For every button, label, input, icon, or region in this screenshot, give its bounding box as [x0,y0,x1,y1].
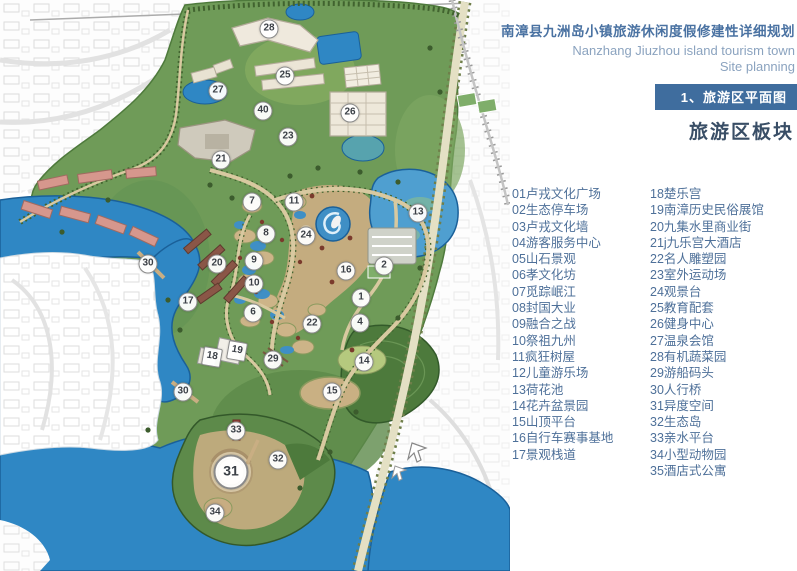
tower [233,420,240,440]
page-title-en: Nanzhang Jiuzhou island tourism town Sit… [487,43,795,75]
legend-item: 28有机蔬菜园 [650,349,764,365]
legend-item: 26健身中心 [650,316,764,332]
legend-item: 25教育配套 [650,300,764,316]
legend-item: 12儿童游乐场 [512,365,650,381]
legend-item: 20九集水里商业街 [650,219,764,235]
legend-column-1: 01卢戎文化广场02生态停车场03卢戎文化墙04游客服务中心05山石景观06孝文… [512,186,650,479]
legend-item: 16自行车赛事基地 [512,430,650,446]
legend-item: 19南漳历史民俗展馆 [650,202,764,218]
legend: 01卢戎文化广场02生态停车场03卢戎文化墙04游客服务中心05山石景观06孝文… [512,186,764,479]
legend-item: 11疯狂树屋 [512,349,650,365]
legend-item: 30人行桥 [650,382,764,398]
legend-item: 35酒店式公寓 [650,463,764,479]
legend-item: 22名人雕塑园 [650,251,764,267]
legend-item: 27温泉会馆 [650,333,764,349]
section-badge: 1、旅游区平面图 [655,84,797,110]
legend-item: 17景观栈道 [512,447,650,463]
legend-item: 09融合之战 [512,316,650,332]
legend-item: 29游船码头 [650,365,764,381]
legend-item: 31异度空间 [650,398,764,414]
legend-column-2: 18楚乐宫19南漳历史民俗展馆20九集水里商业街21j九乐宫大酒店22名人雕塑园… [650,186,764,479]
page-title-cn: 南漳县九洲岛小镇旅游休闲度假修建性详细规划 [487,20,795,40]
legend-item: 21j九乐宫大酒店 [650,235,764,251]
page-title-en-line1: Nanzhang Jiuzhou island tourism town [487,43,795,59]
page-title-en-line2: Site planning [487,59,795,75]
building-fitness-center [330,92,386,136]
spiral-water-feature [316,207,350,241]
legend-item: 10祭祖九州 [512,333,650,349]
legend-item: 18楚乐宫 [650,186,764,202]
sketch-peninsula [0,252,162,455]
legend-item: 04游客服务中心 [512,235,650,251]
section-subtitle: 旅游区板块 [487,117,794,144]
hilltop-platform [300,377,360,409]
legend-item: 13荷花池 [512,382,650,398]
building-museum [215,338,243,365]
map-canvas [0,0,510,571]
legend-item: 34小型动物园 [650,447,764,463]
legend-item: 07觅踪岷江 [512,284,650,300]
legend-item: 02生态停车场 [512,202,650,218]
legend-item: 23室外运动场 [650,267,764,283]
spring-pond [342,135,384,161]
legend-item: 06孝文化坊 [512,267,650,283]
legend-item: 08封国大业 [512,300,650,316]
legend-item: 05山石景观 [512,251,650,267]
legend-item: 01卢戎文化广场 [512,186,650,202]
site-plan-map: 2825274026232171113824920302161011764221… [0,0,510,571]
legend-item: 15山顶平台 [512,414,650,430]
legend-item: 14花卉盆景园 [512,398,650,414]
info-panel: 南漳县九洲岛小镇旅游休闲度假修建性详细规划 Nanzhang Jiuzhou i… [487,0,797,571]
legend-item: 03卢戎文化墙 [512,219,650,235]
legend-item: 24观景台 [650,284,764,300]
legend-item: 32生态岛 [650,414,764,430]
legend-item: 33亲水平台 [650,430,764,446]
